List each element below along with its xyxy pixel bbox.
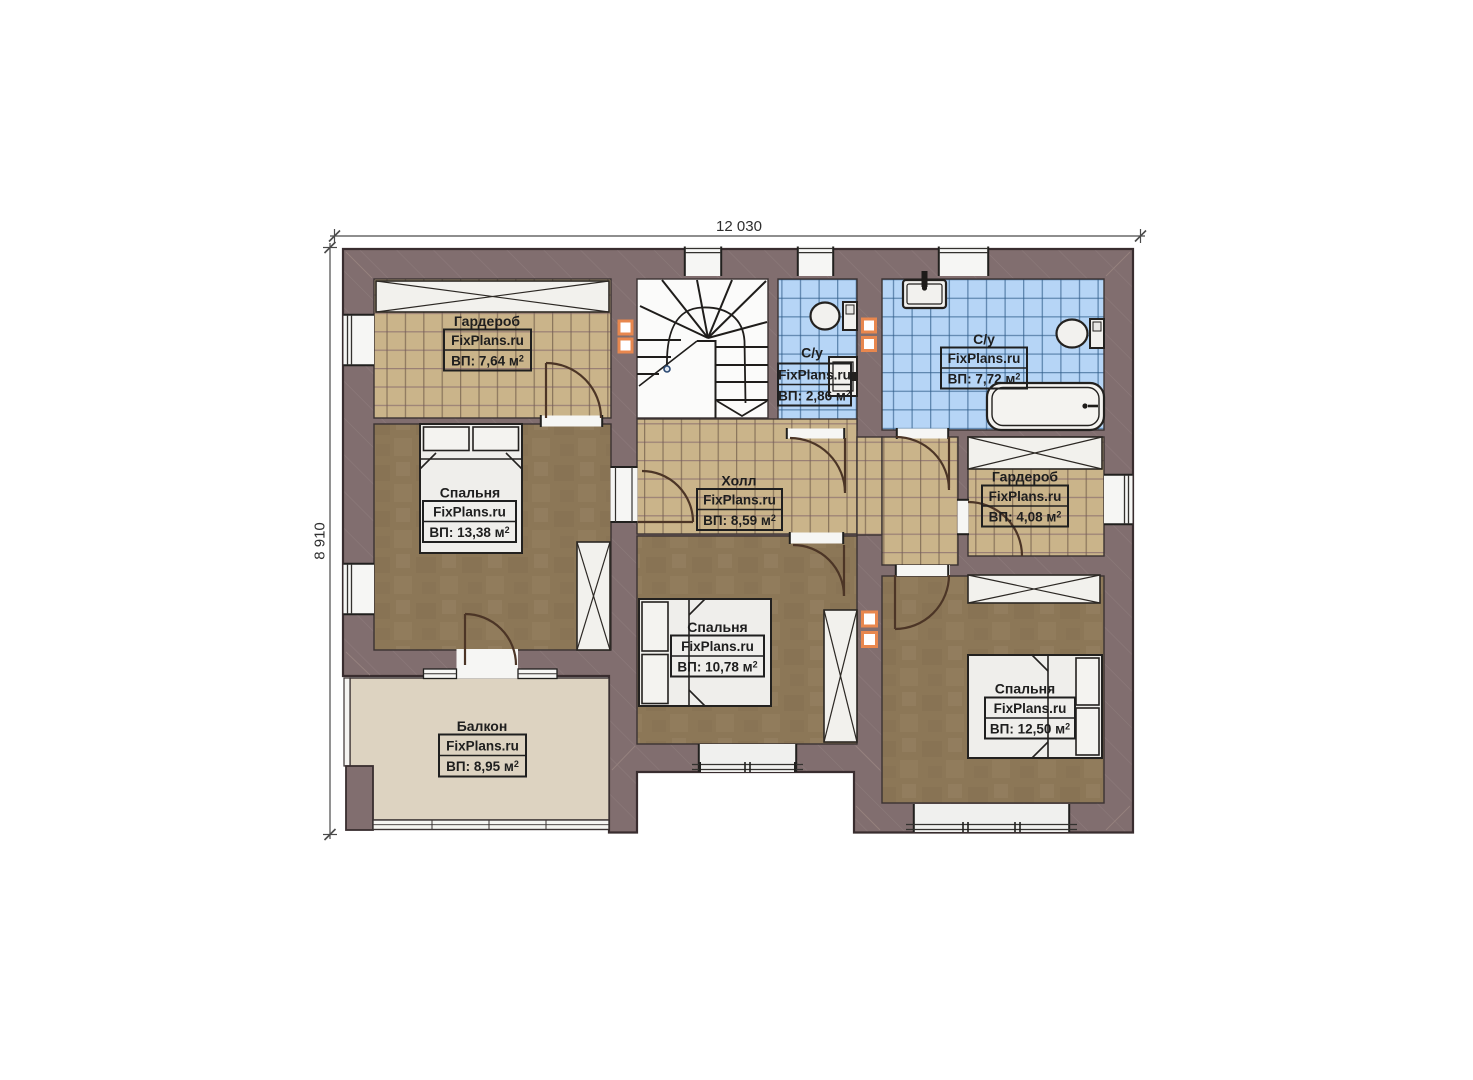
svg-text:Спальня: Спальня: [687, 619, 747, 635]
svg-text:FixPlans.ru: FixPlans.ru: [451, 333, 524, 348]
svg-text:ВП: 7,64 м2: ВП: 7,64 м2: [451, 354, 524, 369]
svg-text:FixPlans.ru: FixPlans.ru: [989, 489, 1062, 504]
svg-text:8 910: 8 910: [312, 522, 329, 560]
svg-text:FixPlans.ru: FixPlans.ru: [994, 701, 1067, 716]
svg-text:ВП: 4,08 м2: ВП: 4,08 м2: [989, 510, 1062, 525]
svg-text:С/у: С/у: [973, 331, 995, 347]
svg-text:ВП: 8,95 м2: ВП: 8,95 м2: [446, 759, 519, 774]
svg-text:ВП: 7,72 м2: ВП: 7,72 м2: [948, 372, 1021, 387]
svg-text:FixPlans.ru: FixPlans.ru: [446, 739, 519, 754]
svg-text:Спальня: Спальня: [440, 485, 500, 501]
svg-text:FixPlans.ru: FixPlans.ru: [681, 639, 754, 654]
svg-text:ВП: 13,38 м2: ВП: 13,38 м2: [429, 525, 509, 540]
svg-text:ВП: 12,50 м2: ВП: 12,50 м2: [990, 722, 1070, 737]
svg-text:С/у: С/у: [801, 345, 823, 361]
svg-text:FixPlans.ru: FixPlans.ru: [703, 493, 776, 508]
svg-text:Балкон: Балкон: [457, 718, 508, 734]
svg-text:Гардероб: Гардероб: [454, 313, 521, 329]
svg-text:12 030: 12 030: [716, 218, 762, 235]
svg-text:ВП: 2,86 м2: ВП: 2,86 м2: [778, 389, 851, 404]
svg-text:FixPlans.ru: FixPlans.ru: [433, 505, 506, 520]
svg-text:FixPlans.ru: FixPlans.ru: [948, 351, 1021, 366]
svg-text:FixPlans.ru: FixPlans.ru: [778, 368, 851, 383]
svg-text:ВП: 10,78 м2: ВП: 10,78 м2: [677, 660, 757, 675]
svg-text:ВП: 8,59 м2: ВП: 8,59 м2: [703, 513, 776, 528]
svg-text:Гардероб: Гардероб: [992, 469, 1059, 485]
svg-text:Холл: Холл: [721, 473, 756, 489]
svg-text:Спальня: Спальня: [995, 681, 1055, 697]
